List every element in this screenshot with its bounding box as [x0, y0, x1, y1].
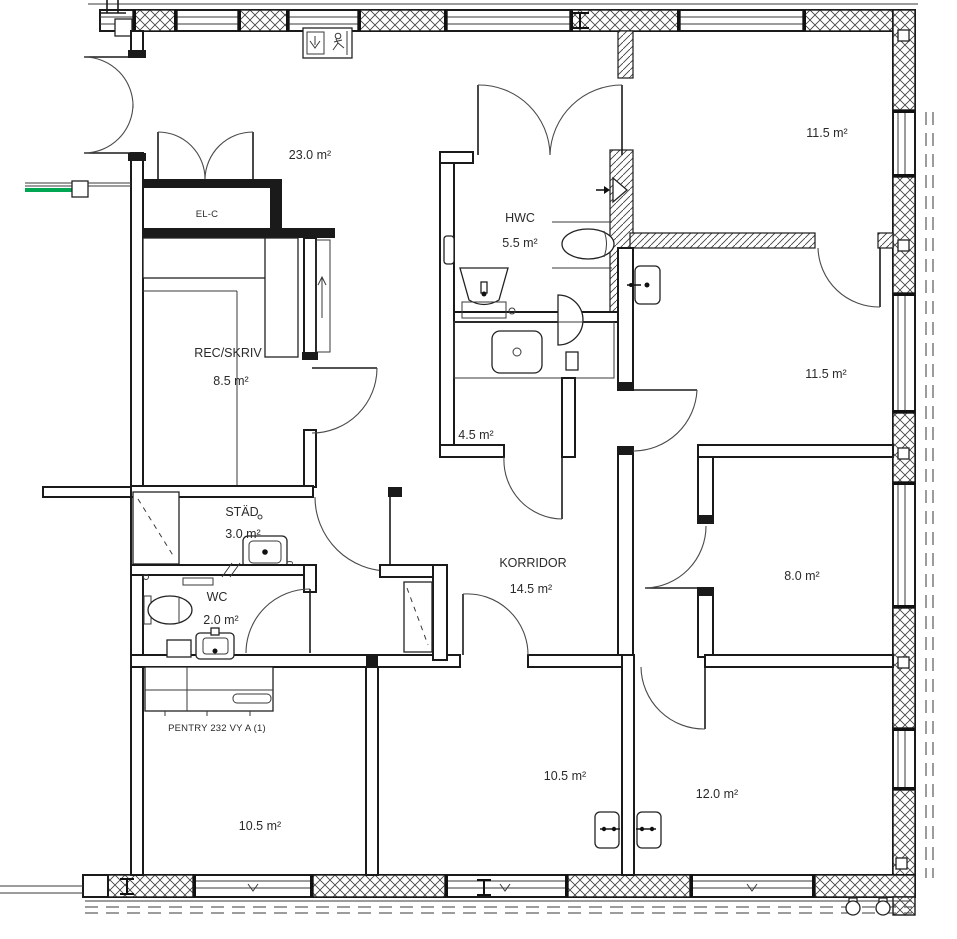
- hand-dryer-icon: [444, 236, 454, 264]
- korridor-area-label: 14.5 m²: [510, 582, 552, 596]
- stad-area-label: 3.0 m²: [225, 527, 260, 541]
- wc-area-label: 2.0 m²: [203, 613, 238, 627]
- hwc-label: HWC: [505, 211, 535, 225]
- door-swing: [246, 589, 310, 653]
- korridor-label: KORRIDOR: [499, 556, 566, 570]
- exterior-wall-left: [25, 31, 146, 875]
- exterior-wall-top: [88, 0, 918, 36]
- wc-label: WC: [207, 590, 228, 604]
- hwc-area-label: 5.5 m²: [502, 236, 537, 250]
- pocket-door: [558, 295, 583, 345]
- room-11-5-mid-area-label: 11.5 m²: [805, 367, 846, 381]
- toilet-icon: [144, 596, 192, 624]
- floor-plan: 23.0 m² EL-C REC/SKRIV 8.5 m²: [0, 0, 957, 939]
- room-10-5-left: PENTRY 232 VY A (1) 10.5 m²: [145, 655, 378, 875]
- toilet-icon: [552, 222, 614, 268]
- rec-skriv-label: REC/SKRIV: [194, 346, 262, 360]
- stad-label: STÄD: [225, 505, 258, 519]
- pentry-label: PENTRY 232 VY A (1): [168, 723, 266, 734]
- corridor-fire-door: [315, 497, 390, 571]
- sink-icon: [492, 331, 542, 373]
- door-swing: [818, 248, 880, 307]
- entry-double-door: [84, 57, 133, 153]
- waste-bin: [167, 640, 191, 657]
- sink-icon: [636, 812, 661, 848]
- room-12-0-area-label: 12.0 m²: [696, 787, 738, 801]
- rec-counter: [143, 238, 267, 278]
- room-stad: STÄD 3.0 m² 50: [131, 486, 402, 571]
- sink-icon: [460, 268, 508, 318]
- left-wall-detail: [25, 181, 131, 497]
- rec-cabinet: [265, 238, 298, 357]
- room-rec-skriv: REC/SKRIV 8.5 m²: [143, 238, 377, 487]
- room-12-0: 12.0 m²: [636, 655, 893, 848]
- door-swing: [504, 457, 562, 519]
- room-23: 23.0 m²: [289, 28, 352, 162]
- door-swing: [645, 526, 706, 588]
- el-c-label: EL-C: [196, 209, 218, 220]
- pentry-counter: [145, 667, 273, 716]
- room-hwc: HWC 5.5 m²: [440, 31, 633, 457]
- mirror-cabinet: [404, 582, 432, 652]
- room-10-5-left-area-label: 10.5 m²: [239, 819, 281, 833]
- door-swing: [312, 368, 377, 433]
- room-10-5-mid-area-label: 10.5 m²: [544, 769, 586, 783]
- room-4-5-area-label: 4.5 m²: [458, 428, 493, 442]
- door-swing: [463, 594, 528, 655]
- hwc-double-door: [478, 85, 622, 155]
- utility-sink-icon: [243, 515, 287, 568]
- sink-icon: [196, 628, 234, 659]
- exterior-wall-right: [893, 10, 933, 897]
- sink-icon: [595, 812, 620, 848]
- room-8-0-area-label: 8.0 m²: [784, 569, 819, 583]
- room-4-5: 4.5 m²: [440, 322, 614, 519]
- room-8-0: 8.0 m²: [645, 445, 893, 657]
- exit-sign-icon: [303, 28, 352, 58]
- rec-skriv-area-label: 8.5 m²: [213, 374, 248, 388]
- room-11-5-top-area-label: 11.5 m²: [806, 126, 847, 140]
- cistern-box: [566, 352, 578, 370]
- sliding-door-arrow-icon: [318, 277, 326, 318]
- el-c-double-door: [158, 132, 253, 179]
- room-23-area-label: 23.0 m²: [289, 148, 331, 162]
- door-swing: [641, 667, 705, 729]
- green-marker: [25, 188, 72, 192]
- room-10-5-mid: 10.5 m²: [463, 594, 634, 875]
- room-korridor: KORRIDOR 14.5 m²: [380, 556, 567, 660]
- shower-icon: [133, 492, 179, 564]
- exterior-wall-bottom: [0, 875, 915, 915]
- shelf: [183, 578, 213, 585]
- sliding-door-panel: [316, 240, 330, 352]
- room-11-5-top: 11.5 m²: [630, 126, 893, 307]
- door-swing: [633, 390, 697, 451]
